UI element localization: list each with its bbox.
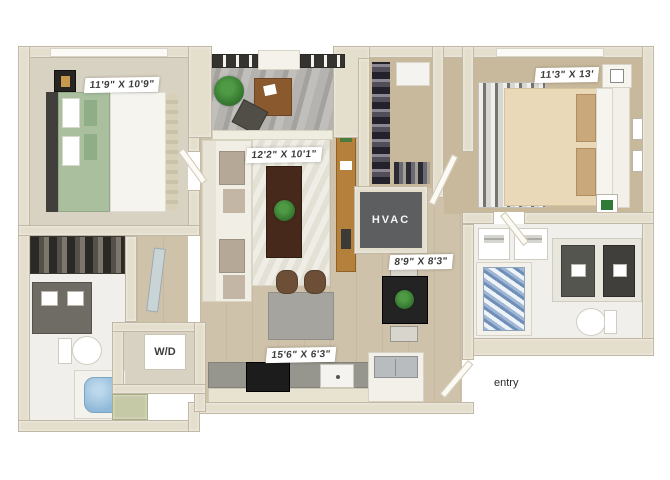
wall-segment <box>112 322 206 332</box>
toilet-tank <box>58 338 72 364</box>
label-living-room-dimensions: 12'2" X 10'1" <box>246 147 323 163</box>
curtain-bedroom-left <box>166 94 178 210</box>
wall-art-frame <box>54 70 76 92</box>
wall-segment <box>642 46 654 356</box>
wall-frame-icon <box>632 150 643 172</box>
linen-shelf <box>478 228 510 260</box>
console-table <box>336 124 356 272</box>
bar-stool <box>304 270 326 294</box>
bed-right-pillow <box>576 94 596 142</box>
paper <box>263 84 277 96</box>
bed-right-frame <box>612 86 630 208</box>
wall-segment <box>18 46 30 432</box>
floor-plan: W/D <box>0 0 670 480</box>
vanity-counter <box>603 245 635 297</box>
washer-dryer-label: W/D <box>154 346 175 358</box>
vanity-counter <box>561 245 595 297</box>
art-inner <box>601 200 613 210</box>
balcony-pillar <box>258 50 300 70</box>
bathroom-left-closet-clothes <box>30 236 125 274</box>
plant-icon <box>274 200 295 221</box>
closet-shoe-rack <box>394 162 430 184</box>
shower-curtain <box>483 267 525 331</box>
wall-segment <box>188 402 474 414</box>
washer-dryer: W/D <box>144 334 186 370</box>
frame-icon <box>610 69 624 83</box>
towels <box>484 235 504 243</box>
balcony-railing <box>300 54 345 68</box>
nightstand <box>602 64 632 88</box>
wall-segment <box>112 384 206 394</box>
bed-left-headboard <box>46 92 58 212</box>
hvac-label: HVAC <box>372 214 410 226</box>
bed-right-pillow <box>576 148 596 196</box>
ceiling-ac-unit <box>396 62 430 86</box>
sofa-pillows <box>223 275 245 299</box>
window-bedroom-left <box>50 48 168 57</box>
sink-divider <box>395 359 396 376</box>
wall-segment <box>188 46 212 138</box>
bed-left-pillow <box>62 98 80 128</box>
wall-segment <box>524 212 654 224</box>
sink <box>571 264 586 277</box>
floor-bedroom-right-doorway <box>462 152 474 212</box>
dining-chair <box>390 326 418 342</box>
wall-segment <box>125 236 137 322</box>
wall-frame-icon <box>632 118 643 140</box>
label-entry: entry <box>494 377 518 389</box>
bed-left-accent-pillow <box>84 100 97 126</box>
hvac-closet: HVAC <box>360 192 422 248</box>
window-bedroom-right <box>496 48 604 57</box>
plant-icon <box>214 76 244 106</box>
balcony-door-sill <box>212 130 333 140</box>
wall-segment <box>462 46 474 152</box>
bed-left-duvet <box>110 92 166 212</box>
console-paper <box>340 161 352 170</box>
wall-segment <box>18 225 200 236</box>
art-inner <box>61 76 70 87</box>
balcony-railing <box>212 54 258 68</box>
vanity-left <box>32 282 92 334</box>
label-dining-dimensions: 8'9" X 8'3" <box>389 254 454 270</box>
label-kitchen-dimensions: 15'6" X 6'3" <box>266 347 337 363</box>
dishwasher-sink <box>320 364 354 388</box>
sofa-pillows <box>219 151 245 185</box>
kitchen-island <box>268 292 334 340</box>
bed-left-pillow <box>62 136 80 166</box>
toilet-bowl <box>576 308 606 336</box>
wall-segment <box>462 224 474 360</box>
toilet-bowl <box>72 336 102 365</box>
sink <box>67 291 84 306</box>
sofa-pillows <box>219 239 245 273</box>
wall-segment <box>194 322 206 412</box>
label-bedroom-right-dimensions: 11'3" X 13' <box>534 67 599 83</box>
wall-segment <box>462 338 654 356</box>
sofa-back <box>203 141 216 301</box>
bed-left-accent-pillow <box>84 134 97 160</box>
label-bedroom-left-dimensions: 11'9" X 10'9" <box>84 77 160 93</box>
floor-bedroom-right-hall <box>444 58 462 214</box>
sofa-pillows <box>223 189 245 213</box>
sink-drain <box>336 375 340 379</box>
wall-sage-accent <box>112 394 148 420</box>
stove <box>246 362 290 392</box>
toilet-tank <box>604 310 617 334</box>
plant-icon <box>395 290 414 309</box>
stainless-sink <box>374 356 418 378</box>
wall-segment <box>18 420 200 432</box>
sink <box>41 291 58 306</box>
wall-segment <box>358 58 370 192</box>
shower-tub <box>476 262 532 336</box>
closet-clothes-rack <box>372 62 390 184</box>
console-speaker <box>341 229 351 249</box>
vanity-right <box>552 238 642 302</box>
wall-segment <box>462 212 494 224</box>
sofa <box>202 140 252 302</box>
bar-stool <box>276 270 298 294</box>
sink <box>613 264 627 277</box>
